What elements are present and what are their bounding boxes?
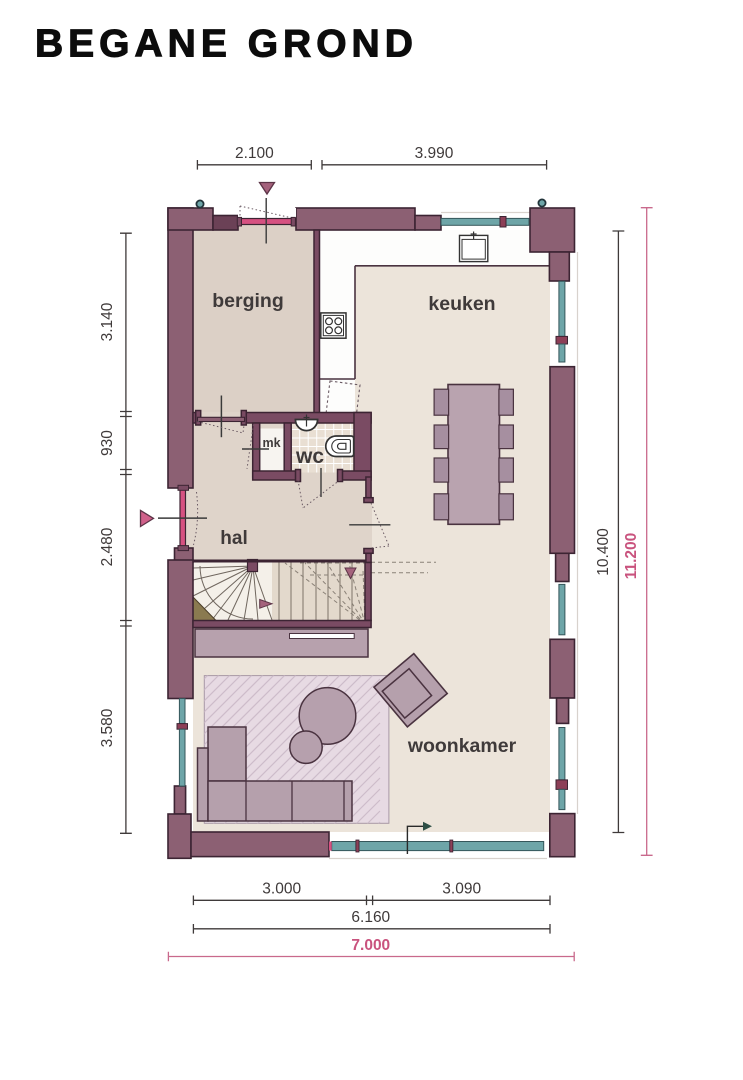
- svg-text:3.140: 3.140: [99, 302, 116, 341]
- svg-text:10.400: 10.400: [595, 528, 612, 576]
- svg-text:6.160: 6.160: [351, 909, 390, 926]
- svg-text:hal: hal: [220, 528, 247, 549]
- svg-text:mk: mk: [262, 436, 280, 450]
- svg-text:berging: berging: [212, 290, 284, 312]
- svg-text:keuken: keuken: [428, 293, 495, 315]
- svg-text:woonkamer: woonkamer: [407, 735, 517, 757]
- svg-text:BEGANE GROND: BEGANE GROND: [35, 23, 418, 66]
- svg-text:wc: wc: [295, 445, 324, 468]
- svg-text:11.200: 11.200: [623, 533, 640, 580]
- svg-text:930: 930: [99, 430, 116, 456]
- svg-text:2.100: 2.100: [235, 145, 274, 162]
- svg-text:2.480: 2.480: [99, 527, 116, 566]
- svg-text:7.000: 7.000: [351, 937, 390, 954]
- svg-text:3.580: 3.580: [99, 708, 116, 747]
- svg-text:3.090: 3.090: [442, 881, 481, 898]
- svg-text:3.990: 3.990: [415, 145, 454, 162]
- svg-text:3.000: 3.000: [262, 881, 301, 898]
